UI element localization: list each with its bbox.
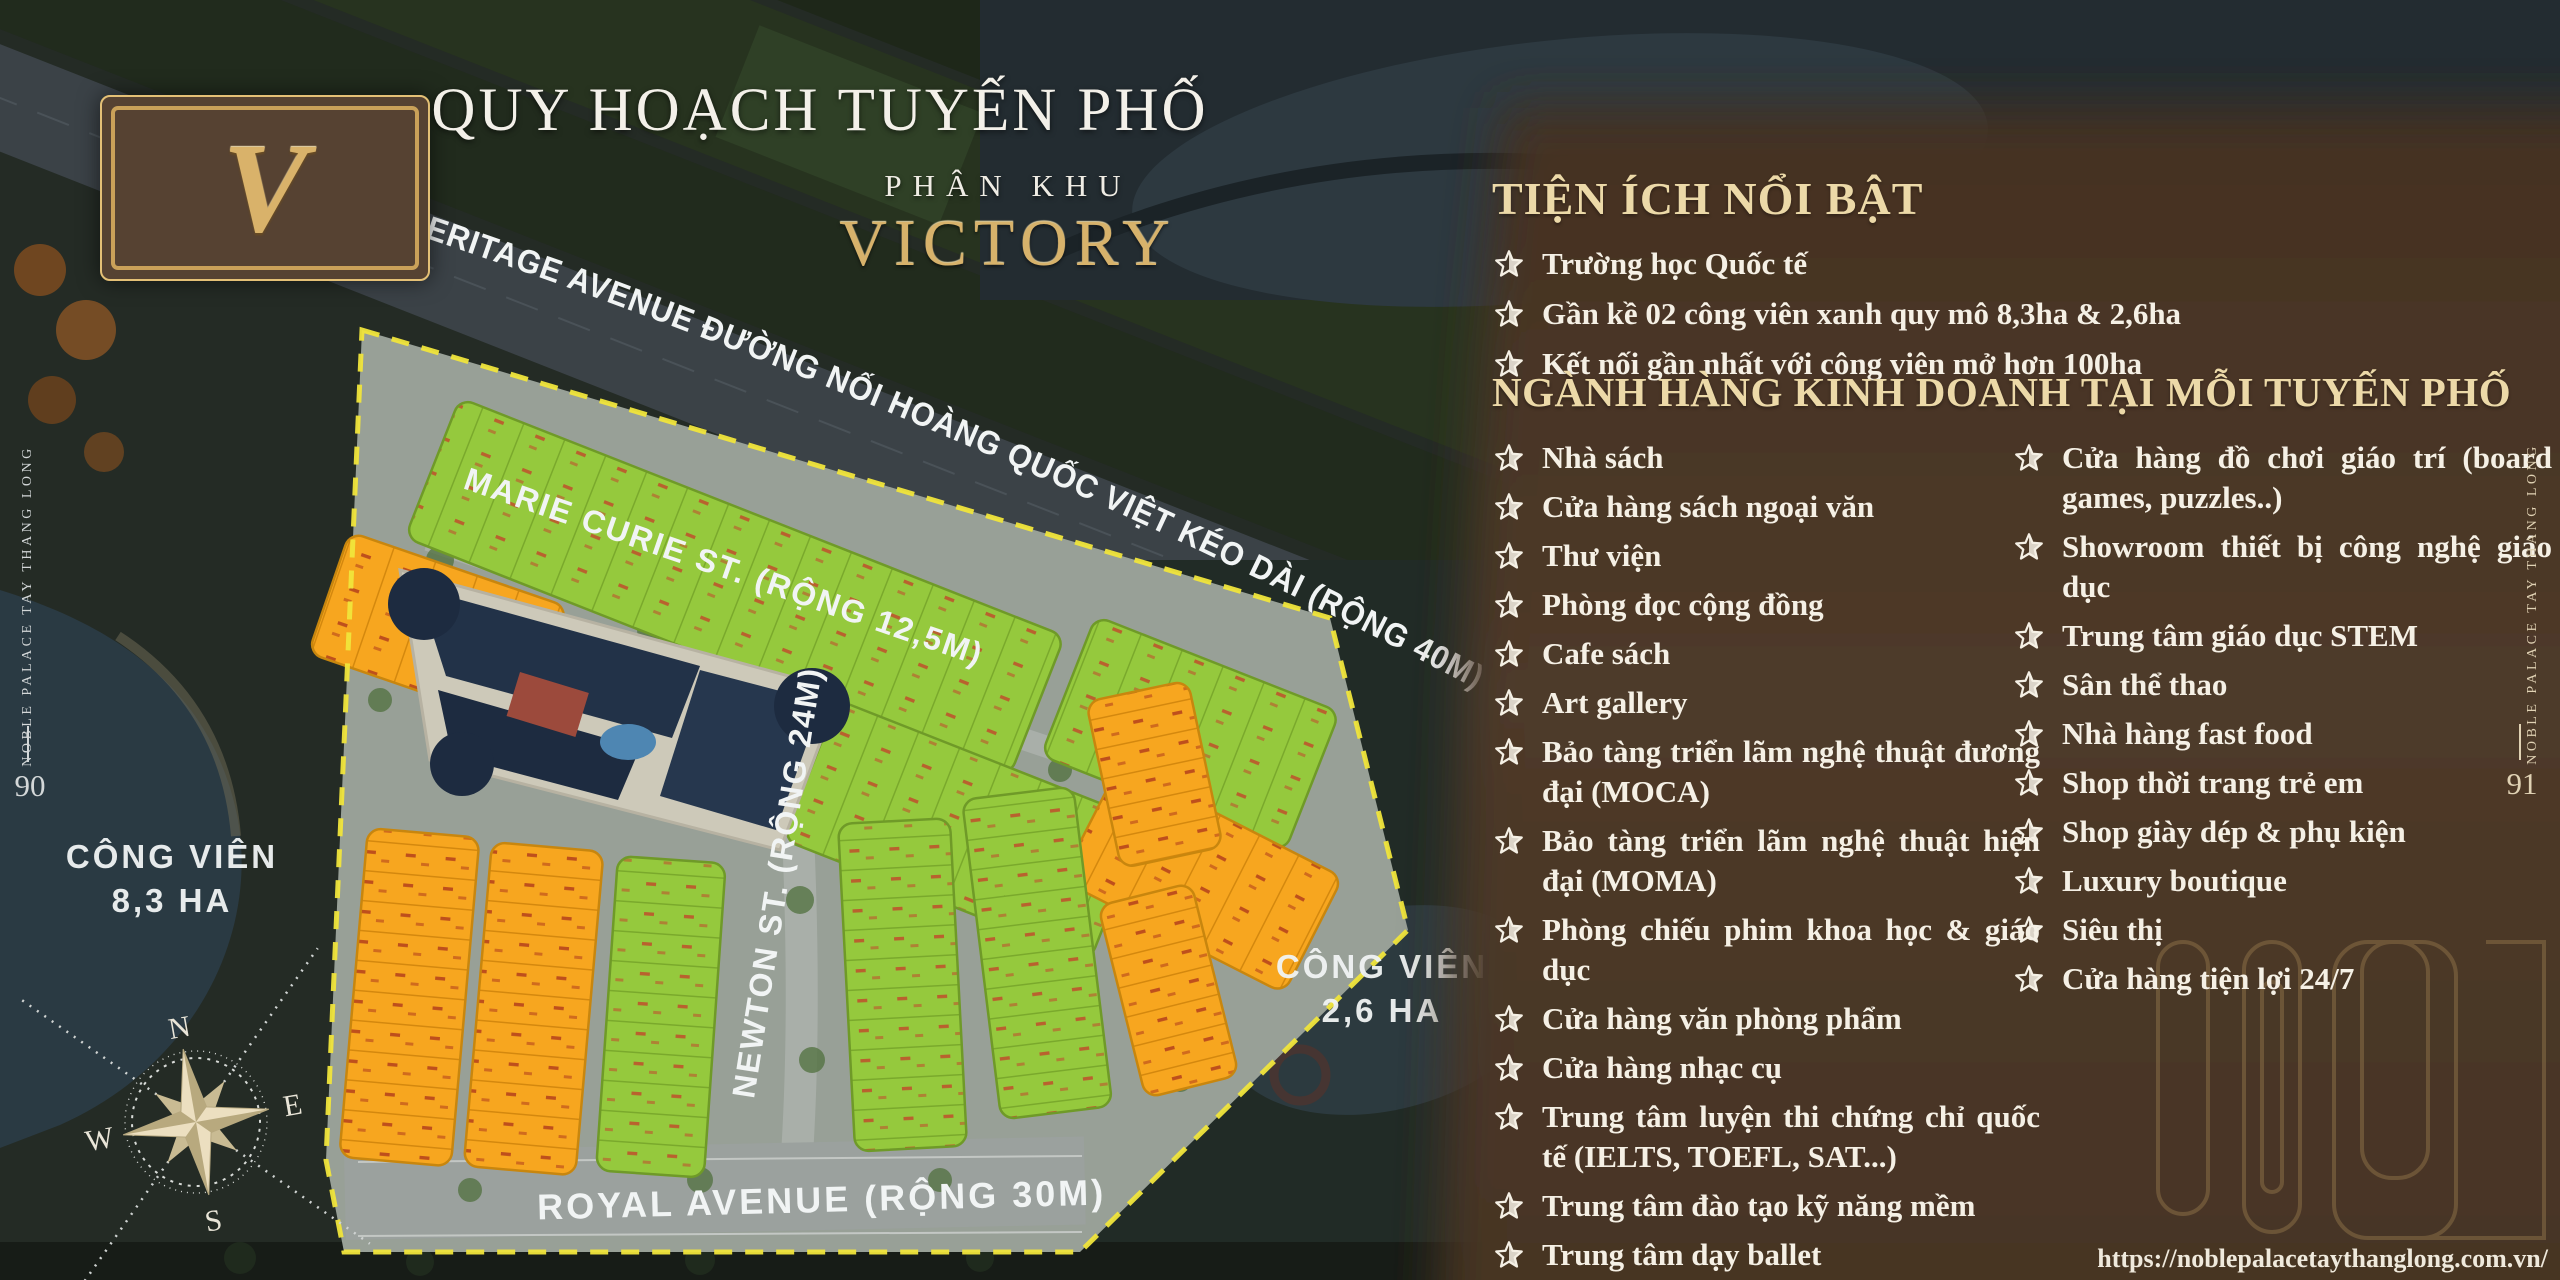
star-icon bbox=[1494, 1191, 1524, 1221]
star-icon bbox=[1494, 443, 1524, 473]
star-icon bbox=[2014, 817, 2044, 847]
page-number-left: 90 bbox=[0, 768, 60, 804]
page-title: QUY HOẠCH TUYẾN PHỐ bbox=[430, 76, 1210, 146]
list-item: Trường học Quốc tế bbox=[1492, 244, 2181, 284]
star-icon bbox=[2014, 768, 2044, 798]
list-item: Cửa hàng sách ngoại văn bbox=[1492, 487, 2040, 527]
star-icon bbox=[2014, 964, 2044, 994]
list-item: Nhà sách bbox=[1492, 438, 2040, 478]
edge-text-right: NOBLE PALACE TAY THANG LONG bbox=[2525, 389, 2541, 819]
list-item: Thư viện bbox=[1492, 536, 2040, 576]
list-item: Cửa hàng nhạc cụ bbox=[1492, 1048, 2040, 1088]
list-item: Art gallery bbox=[1492, 683, 2040, 723]
star-icon bbox=[1494, 1240, 1524, 1270]
list-item: Showroom thiết bị công nghệ giáo dục bbox=[2012, 527, 2552, 607]
star-icon bbox=[1494, 1102, 1524, 1132]
star-icon bbox=[1494, 639, 1524, 669]
list-item: Bảo tàng triển lãm nghệ thuật hiện đại (… bbox=[1492, 821, 2040, 901]
zone-name: VICTORY bbox=[808, 206, 1208, 282]
star-icon bbox=[1494, 688, 1524, 718]
block-green bbox=[838, 818, 967, 1151]
star-icon bbox=[1494, 1004, 1524, 1034]
list-item: Trung tâm đào tạo kỹ năng mềm bbox=[1492, 1186, 2040, 1226]
list-item: Cửa hàng văn phòng phẩm bbox=[1492, 999, 2040, 1039]
park-26-label-line2: 2,6 HA bbox=[1322, 992, 1443, 1029]
business-heading: NGÀNH HÀNG KINH DOANH TẠI MỖI TUYẾN PHỐ bbox=[1492, 368, 2511, 416]
edge-dash-left bbox=[27, 726, 29, 762]
list-item: Gần kề 02 công viên xanh quy mô 8,3ha & … bbox=[1492, 294, 2181, 334]
page-subtitle: PHÂN KHU bbox=[808, 168, 1208, 204]
block-green bbox=[596, 856, 726, 1178]
business-list-right: Cửa hàng đồ chơi giáo trí (board games, … bbox=[2012, 438, 2552, 999]
star-icon bbox=[1494, 826, 1524, 856]
list-item: Trung tâm luyện thi chứng chỉ quốc tế (I… bbox=[1492, 1097, 2040, 1177]
star-icon bbox=[1494, 915, 1524, 945]
plaque-border bbox=[111, 106, 419, 270]
star-icon bbox=[2014, 915, 2044, 945]
list-item: Trung tâm giáo dục STEM bbox=[2012, 616, 2552, 656]
list-item: Luxury boutique bbox=[2012, 861, 2552, 901]
park-83-label-line2: 8,3 HA bbox=[112, 882, 233, 919]
list-item: Cafe sách bbox=[1492, 634, 2040, 674]
star-icon bbox=[1494, 590, 1524, 620]
star-icon bbox=[2014, 670, 2044, 700]
list-item: Nhà hàng fast food bbox=[2012, 714, 2552, 754]
list-item: Bảo tàng triển lãm nghệ thuật đương đại … bbox=[1492, 732, 2040, 812]
star-icon bbox=[1494, 299, 1524, 329]
park-83-label-line1: CÔNG VIÊN bbox=[66, 837, 278, 875]
list-item: Cửa hàng tiện lợi 24/7 bbox=[2012, 959, 2552, 999]
brochure-page: N E S W HERITAGE AVENUE ĐƯỜNG NỐI HOÀNG … bbox=[0, 0, 2560, 1280]
list-item: Phòng chiếu phim khoa học & giáo dục bbox=[1492, 910, 2040, 990]
star-icon bbox=[2014, 532, 2044, 562]
star-icon bbox=[1494, 1053, 1524, 1083]
star-icon bbox=[2014, 719, 2044, 749]
list-item: Sân thể thao bbox=[2012, 665, 2552, 705]
page-number-right: 91 bbox=[2492, 766, 2552, 802]
edge-dash-right bbox=[2519, 724, 2521, 760]
list-item: Siêu thị bbox=[2012, 910, 2552, 950]
list-item: Phòng đọc cộng đồng bbox=[1492, 585, 2040, 625]
star-icon bbox=[1494, 541, 1524, 571]
star-icon bbox=[2014, 443, 2044, 473]
list-item: Cửa hàng đồ chơi giáo trí (board games, … bbox=[2012, 438, 2552, 518]
star-icon bbox=[1494, 492, 1524, 522]
star-icon bbox=[2014, 621, 2044, 651]
list-item: Shop giày dép & phụ kiện bbox=[2012, 812, 2552, 852]
website-url: https://noblepalacetaythanglong.com.vn/ bbox=[2097, 1244, 2548, 1274]
list-item: Trung tâm dạy ballet bbox=[1492, 1235, 2040, 1275]
star-icon bbox=[2014, 866, 2044, 896]
business-list-left: Nhà sách Cửa hàng sách ngoại văn Thư việ… bbox=[1492, 438, 2040, 1275]
star-icon bbox=[1494, 737, 1524, 767]
star-icon bbox=[1494, 249, 1524, 279]
amenities-heading: TIỆN ÍCH NỔI BẬT bbox=[1492, 172, 1923, 225]
amenities-list: Trường học Quốc tế Gần kề 02 công viên x… bbox=[1492, 244, 2181, 384]
victory-logo-plaque: V bbox=[100, 95, 430, 281]
list-item: Shop thời trang trẻ em bbox=[2012, 763, 2552, 803]
